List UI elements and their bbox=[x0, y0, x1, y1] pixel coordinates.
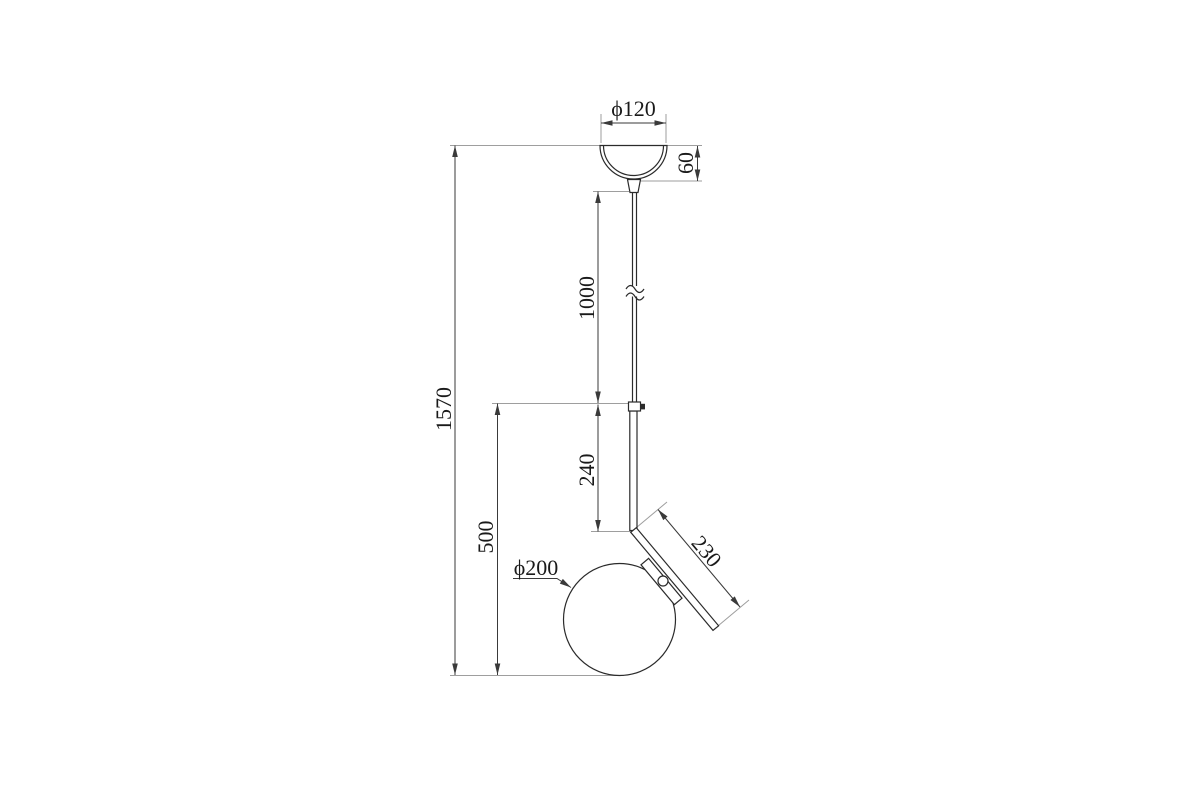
globe-drop-label: 500 bbox=[473, 521, 498, 554]
stem-rod bbox=[630, 411, 637, 531]
arm-end-extension-line bbox=[719, 600, 750, 626]
drawing-canvas: 1570 500 1000 240 60 ϕ120 230 ϕ200 bbox=[0, 0, 1200, 800]
arm-length-label: 230 bbox=[687, 531, 727, 572]
stem-length-label: 240 bbox=[574, 454, 599, 487]
pendant-lamp-dimension-drawing: 1570 500 1000 240 60 ϕ120 230 ϕ200 bbox=[0, 0, 1200, 800]
cable-break-symbol-top bbox=[626, 286, 644, 293]
cable-rod-connector bbox=[629, 402, 641, 411]
ceiling-canopy-dome bbox=[600, 146, 667, 180]
canopy-diameter-label: ϕ120 bbox=[611, 96, 656, 121]
suspension-cable bbox=[626, 193, 644, 403]
cable-grip bbox=[628, 180, 641, 193]
pivot-screw bbox=[658, 576, 668, 586]
connector-set-screw bbox=[641, 404, 646, 410]
cable-length-label: 1000 bbox=[574, 276, 599, 320]
canopy-height-label: 60 bbox=[673, 152, 698, 174]
lamp-outline bbox=[564, 146, 719, 676]
dimension-labels: 1570 500 1000 240 60 ϕ120 230 ϕ200 bbox=[431, 96, 727, 580]
globe-diameter-label: ϕ200 bbox=[514, 555, 559, 580]
cable-break-symbol-bottom bbox=[626, 293, 644, 300]
total-height-label: 1570 bbox=[431, 387, 456, 431]
